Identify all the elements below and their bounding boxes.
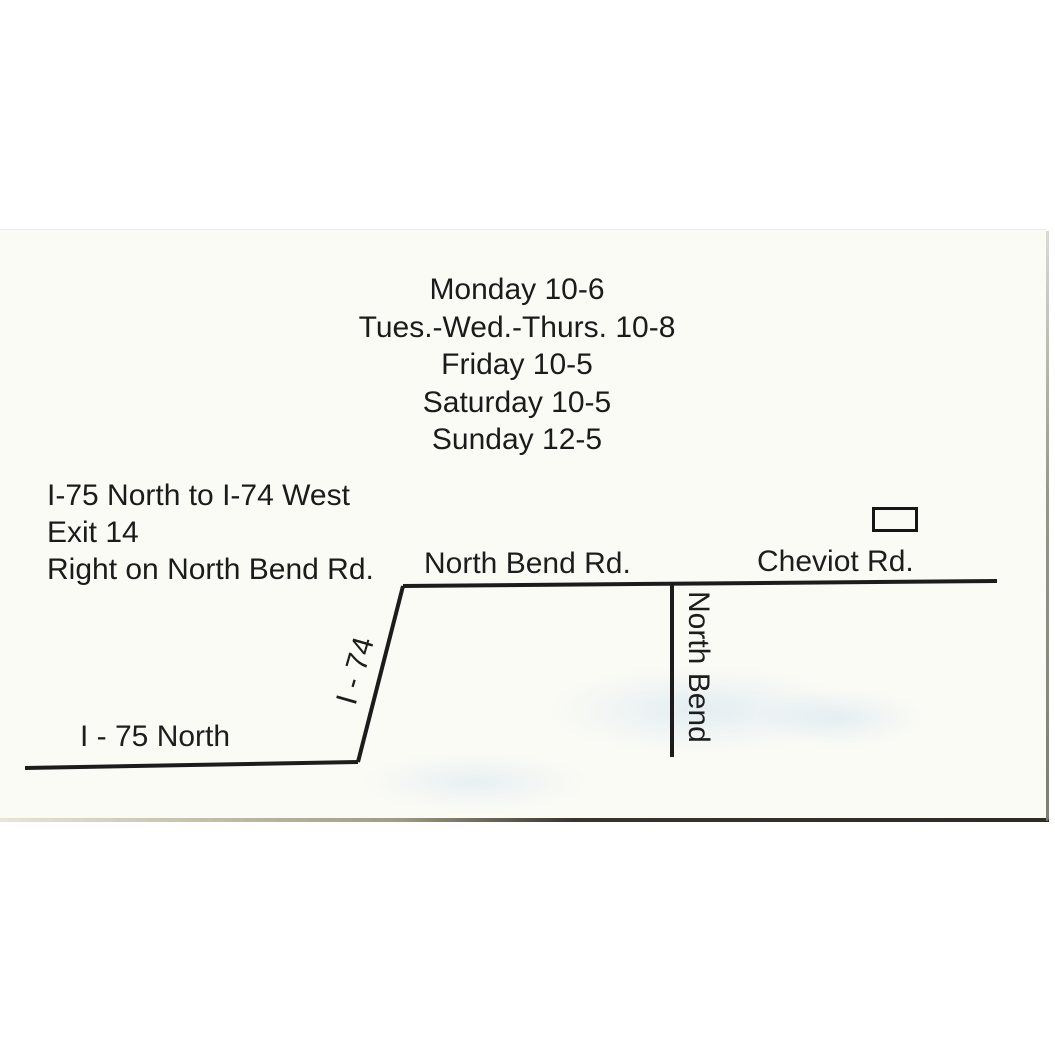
map-label-north-bend-street: North Bend: [681, 591, 715, 743]
map-label-i75-north: I - 75 North: [80, 720, 230, 754]
map-label-north-bend-rd: North Bend Rd.: [424, 547, 631, 581]
store-location-box: [872, 507, 918, 532]
map-label-cheviot-rd: Cheviot Rd.: [757, 545, 914, 579]
scanned-card-page: Monday 10-6 Tues.-Wed.-Thurs. 10-8 Frida…: [0, 0, 1055, 1055]
road-north-bend-line: [403, 581, 997, 586]
road-i75-line: [25, 762, 358, 768]
